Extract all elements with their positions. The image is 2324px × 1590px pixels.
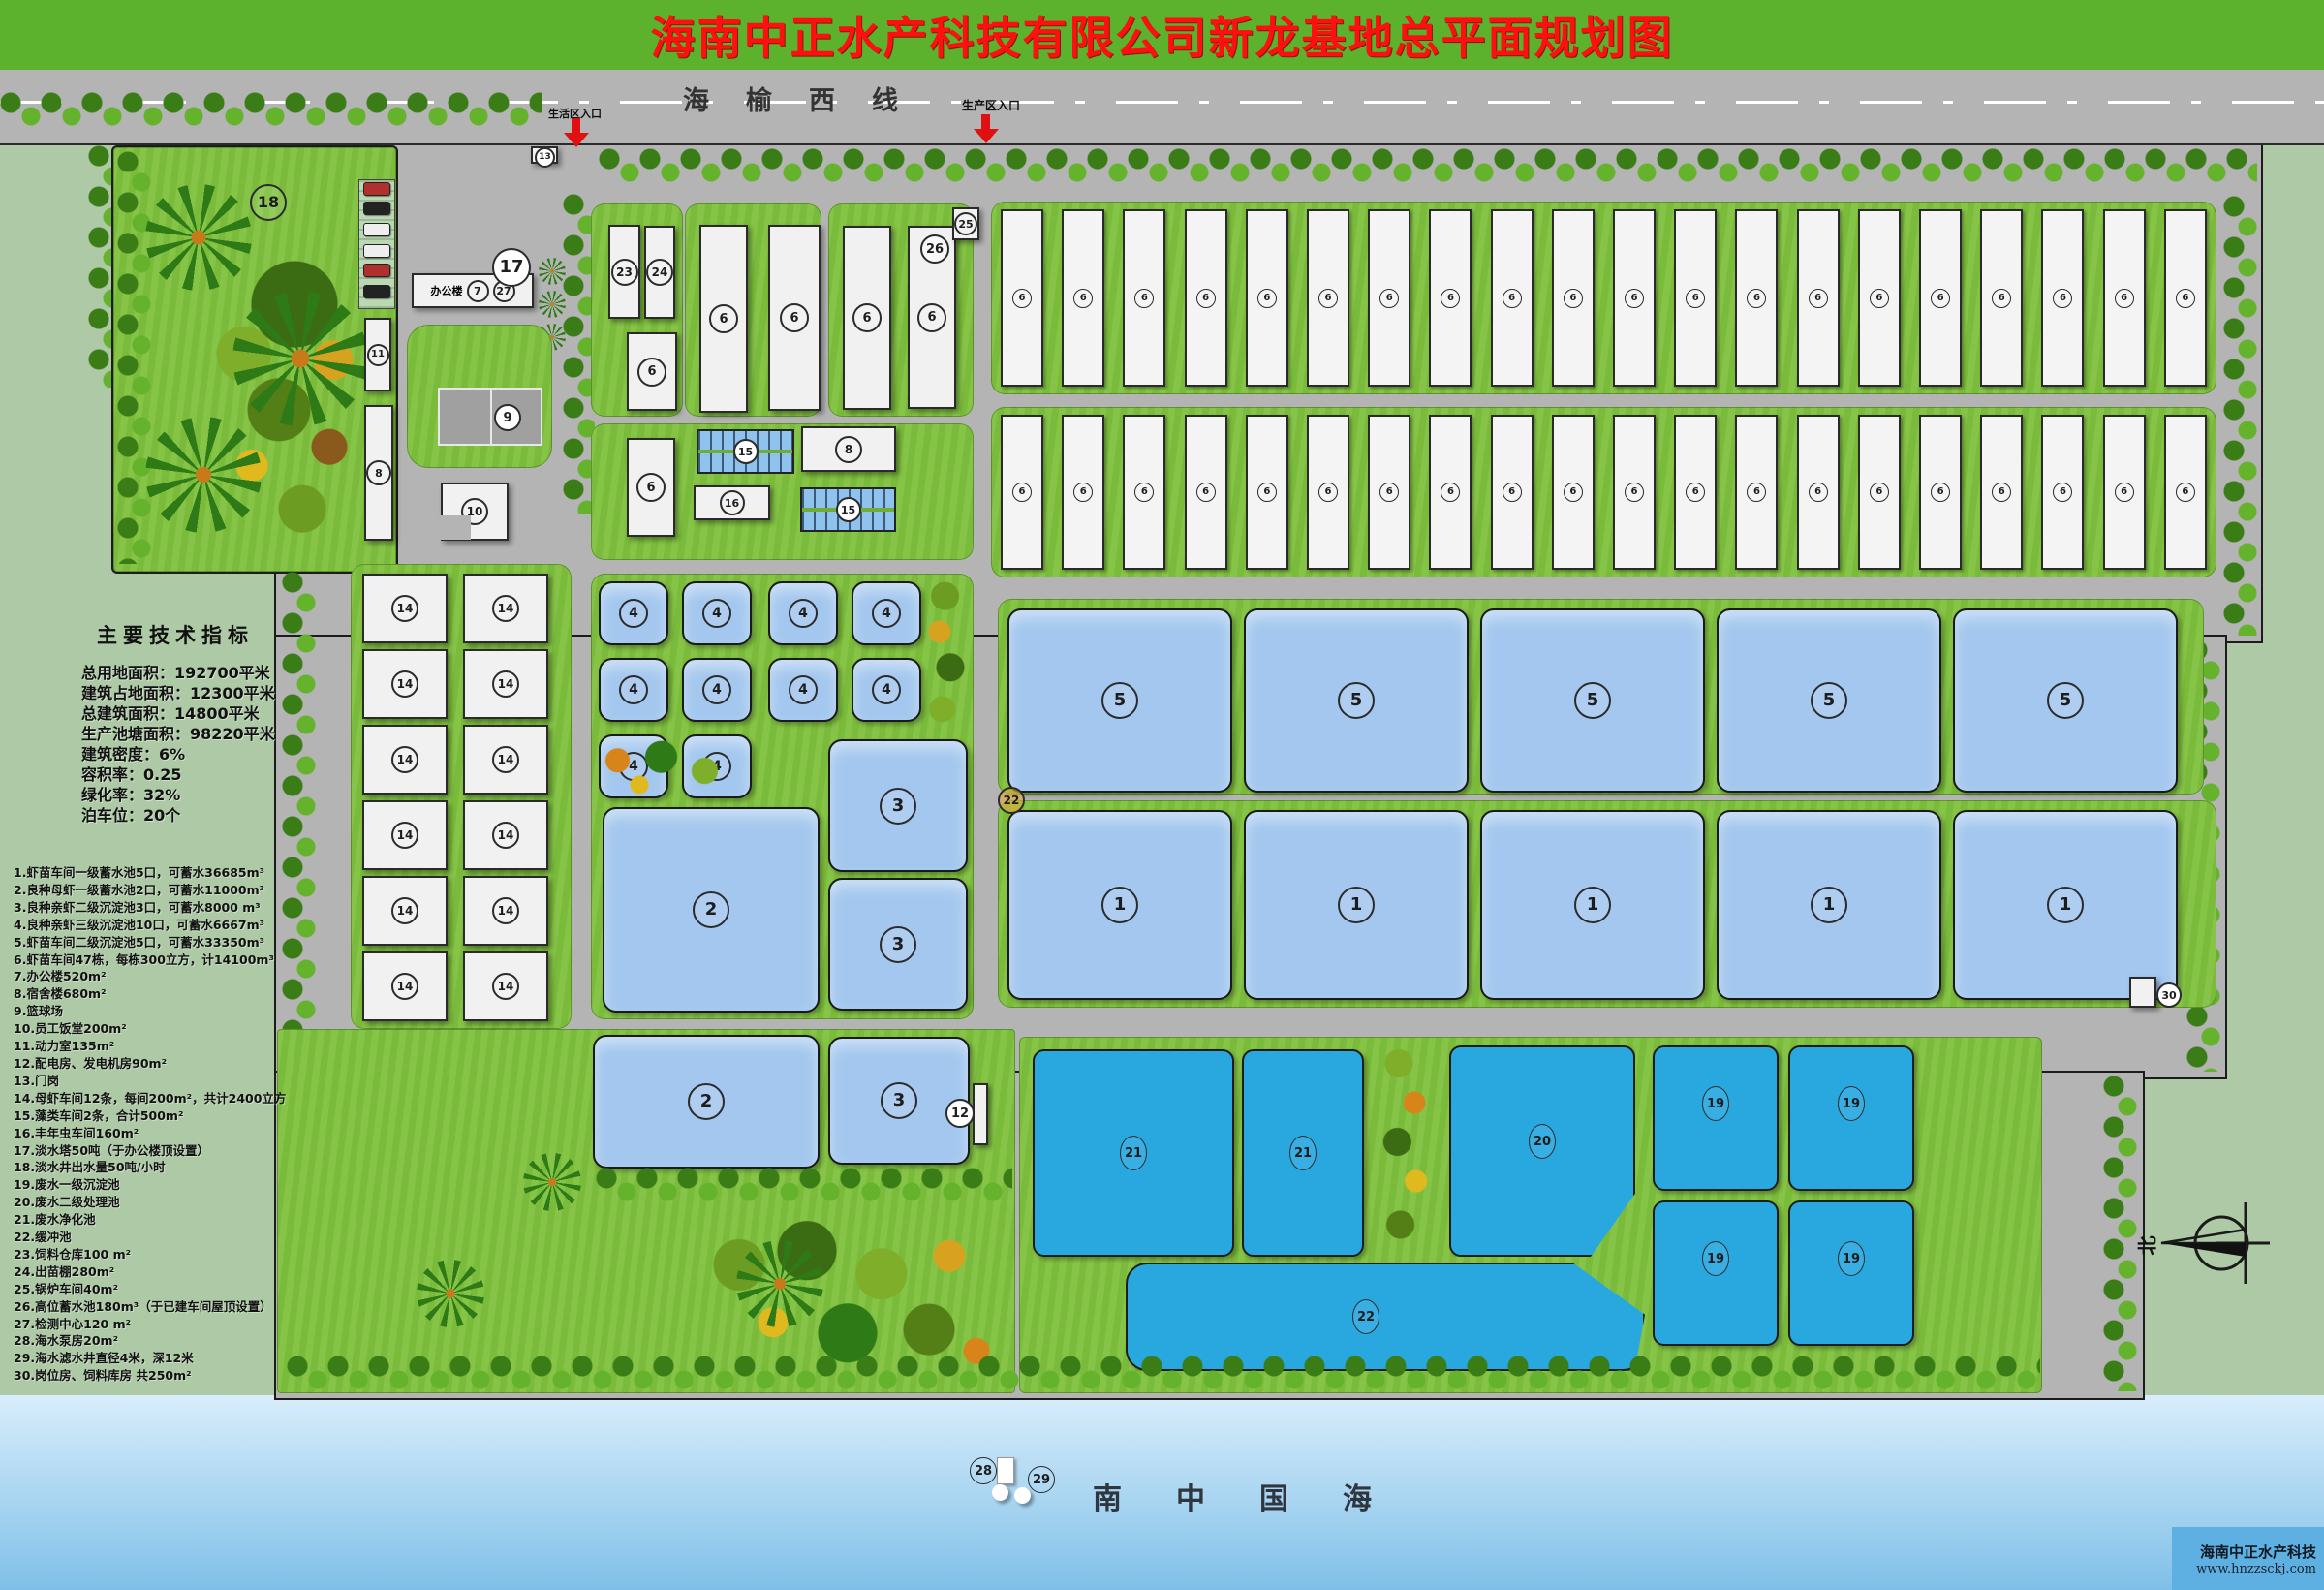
label-6-workshop: 6 bbox=[1625, 483, 1644, 502]
label-6-workshop: 6 bbox=[780, 303, 809, 332]
shrimp-workshop-building: 6 bbox=[1246, 209, 1288, 387]
label-14-mother-shrimp: 14 bbox=[492, 897, 519, 924]
shrimp-workshop-building: 6 bbox=[2041, 415, 2084, 570]
label-6-workshop: 6 bbox=[637, 358, 666, 387]
site-plan-canvas: 海南中正水产科技有限公司新龙基地总平面规划图 海榆西线 生活区入口 生产区入口 … bbox=[0, 0, 2324, 1590]
label-20: 20 bbox=[1529, 1124, 1556, 1159]
pond-21-purification: 21 bbox=[1242, 1049, 1364, 1257]
pond-1-primary-reservoir: 1 bbox=[1480, 810, 1705, 1000]
shrimp-workshop-building: 6 bbox=[1368, 209, 1410, 387]
label-25-boiler-room: 25 bbox=[954, 212, 977, 235]
car-icon bbox=[363, 202, 390, 215]
prod-entrance-arrow bbox=[981, 114, 990, 130]
shrimp-workshop-building: 6 bbox=[2164, 415, 2207, 570]
legend-item-line: 6.虾苗车间47栋，每栋300立方，计14100m³ bbox=[14, 951, 286, 969]
legend-item-line: 20.废水二级处理池 bbox=[14, 1194, 286, 1211]
label-6-workshop: 6 bbox=[1870, 483, 1889, 502]
label-4: 4 bbox=[702, 675, 731, 704]
tree-column bbox=[2220, 196, 2257, 636]
label-5: 5 bbox=[2047, 682, 2084, 719]
label-14-mother-shrimp: 14 bbox=[492, 822, 519, 849]
pond-1-primary-reservoir: 1 bbox=[1007, 810, 1232, 1000]
pond-4-tertiary-sedimentation: 4 bbox=[682, 581, 752, 645]
shrimp-workshop-building: 6 bbox=[627, 332, 677, 411]
pond-2-mother-shrimp-reservoir: 2 bbox=[593, 1035, 820, 1169]
label-9-basketball-court: 9 bbox=[494, 404, 521, 431]
label-1: 1 bbox=[1101, 887, 1138, 923]
label-6-workshop: 6 bbox=[1809, 483, 1828, 502]
label-6-workshop: 6 bbox=[636, 473, 666, 502]
pond-1-primary-reservoir: 1 bbox=[1717, 810, 1941, 1000]
pond-3-secondary-sedimentation: 3 bbox=[828, 1037, 970, 1165]
label-4: 4 bbox=[872, 675, 901, 704]
indicator-line: 总用地面积：192700平米 bbox=[81, 663, 275, 683]
label-1: 1 bbox=[1811, 887, 1847, 923]
tree-grove bbox=[1368, 1042, 1445, 1260]
label-19: 19 bbox=[1838, 1241, 1865, 1276]
tree-grove bbox=[918, 577, 972, 733]
label-11-power-room: 11 bbox=[367, 344, 389, 366]
label-21: 21 bbox=[1289, 1136, 1317, 1170]
label-6-workshop: 6 bbox=[1196, 289, 1216, 308]
shrimp-workshop-building: 6 bbox=[1858, 415, 1901, 570]
label-1: 1 bbox=[1574, 887, 1611, 923]
legend-item-line: 15.藻类车间2条，合计500m² bbox=[14, 1107, 286, 1125]
label-6-workshop: 6 bbox=[1503, 289, 1522, 308]
label-14-mother-shrimp: 14 bbox=[492, 670, 519, 698]
label-6-workshop: 6 bbox=[1012, 483, 1032, 502]
label-26-elevated-tank: 26 bbox=[920, 234, 949, 264]
label-16-brine-shrimp-workshop: 16 bbox=[720, 490, 745, 515]
sedimentation-ponds-grid: 4 4 4 4 bbox=[768, 581, 917, 718]
shrimp-workshop-building: 6 bbox=[1735, 209, 1778, 387]
tree-row bbox=[0, 89, 542, 136]
legend-item-line: 10.员工饭堂200m² bbox=[14, 1020, 286, 1038]
prod-entrance-arrowhead bbox=[974, 129, 999, 143]
label-14-mother-shrimp: 14 bbox=[492, 746, 519, 773]
pond-5-secondary-sedimentation: 5 bbox=[1480, 608, 1705, 793]
shrimp-workshop-building: 6 bbox=[1062, 209, 1104, 387]
label-6-workshop: 6 bbox=[1073, 289, 1093, 308]
label-6-workshop: 6 bbox=[1134, 483, 1154, 502]
sea-label: 南中国海 bbox=[1093, 1475, 1426, 1517]
label-30-post-house: 30 bbox=[2156, 982, 2182, 1008]
shrimp-workshop-building: 6 bbox=[1307, 415, 1349, 570]
indicator-line: 容积率：0.25 bbox=[81, 764, 275, 785]
label-6-workshop: 6 bbox=[1747, 483, 1766, 502]
mother-shrimp-workshop-building: 14 bbox=[362, 574, 448, 643]
legend-item-line: 12.配电房、发电机房90m² bbox=[14, 1055, 286, 1073]
label-6-workshop: 6 bbox=[1503, 483, 1522, 502]
shrimp-workshop-building: 6 bbox=[1001, 415, 1043, 570]
mother-shrimp-workshop-building: 14 bbox=[463, 800, 548, 870]
label-6-workshop: 6 bbox=[1747, 289, 1766, 308]
legend-item-line: 5.虾苗车间二级沉淀池5口，可蓄水33350m³ bbox=[14, 934, 286, 951]
shrimp-workshop-building: 6 bbox=[1674, 415, 1717, 570]
legend-item-line: 29.海水滤水井直径4米，深12米 bbox=[14, 1350, 286, 1367]
legend-item-line: 9.篮球场 bbox=[14, 1003, 286, 1020]
legend-items: 1.虾苗车间一级蓄水池5口，可蓄水36685m³2.良种母虾一级蓄水池2口，可蓄… bbox=[14, 864, 286, 1385]
indicator-line: 总建筑面积：14800平米 bbox=[81, 703, 275, 724]
shed-grid: 14 14 14 14 14 14 14 14 14 14 14 14 bbox=[362, 574, 544, 1017]
label-21: 21 bbox=[1120, 1136, 1147, 1170]
label-6-workshop: 6 bbox=[709, 304, 738, 333]
indicator-line: 建筑密度：6% bbox=[81, 744, 275, 764]
compass-north-label: 北 bbox=[2132, 1236, 2160, 1256]
indicator-line: 生产池塘面积：98220平米 bbox=[81, 724, 275, 744]
legend-item-line: 11.动力室135m² bbox=[14, 1038, 286, 1055]
primary-sedimentation-grid: 19 19 19 19 bbox=[1653, 1045, 1910, 1342]
label-3: 3 bbox=[880, 926, 916, 963]
pond-2-mother-shrimp-reservoir: 2 bbox=[603, 807, 820, 1013]
palm-tree-icon bbox=[539, 291, 566, 318]
pond-5-secondary-sedimentation: 5 bbox=[1007, 608, 1232, 793]
label-6-workshop: 6 bbox=[1379, 289, 1399, 308]
label-3: 3 bbox=[881, 1082, 917, 1119]
label-3: 3 bbox=[880, 788, 916, 825]
shrimp-workshop-building: 6 bbox=[2041, 209, 2084, 387]
legend-item-line: 22.缓冲池 bbox=[14, 1229, 286, 1246]
pond-4-tertiary-sedimentation: 4 bbox=[768, 658, 838, 722]
mother-shrimp-workshop-building: 14 bbox=[362, 876, 448, 946]
shrimp-workshop-building: 6 bbox=[1123, 415, 1165, 570]
algae-workshop-pond: 15 bbox=[800, 487, 896, 532]
label-6-workshop: 6 bbox=[1073, 483, 1093, 502]
pond-19-primary-sedimentation: 19 bbox=[1788, 1200, 1914, 1346]
dormitory-building: 8 bbox=[364, 405, 393, 541]
mother-shrimp-workshop-building: 14 bbox=[463, 649, 548, 719]
legend-item-line: 25.锅炉车间40m² bbox=[14, 1281, 286, 1298]
shrimp-workshop-building: 6 bbox=[1429, 209, 1472, 387]
title-banner: 海南中正水产科技有限公司新龙基地总平面规划图 bbox=[0, 0, 2324, 70]
label-22: 22 bbox=[1352, 1299, 1379, 1334]
pond-20-secondary-treatment: 20 bbox=[1449, 1045, 1635, 1257]
legend-item-line: 13.门岗 bbox=[14, 1073, 286, 1090]
legend-item-line: 24.出苗棚280m² bbox=[14, 1263, 286, 1281]
label-6-workshop: 6 bbox=[852, 303, 882, 332]
label-6-workshop: 6 bbox=[1564, 483, 1583, 502]
legend-item-line: 2.良种母虾一级蓄水池2口，可蓄水11000m³ bbox=[14, 882, 286, 899]
label-8-dormitory: 8 bbox=[835, 436, 862, 463]
label-2: 2 bbox=[688, 1083, 725, 1120]
sea-pump-house bbox=[997, 1457, 1014, 1484]
shrimp-workshop-building: 6 bbox=[1735, 415, 1778, 570]
shrimp-workshop-building: 6 bbox=[1368, 415, 1410, 570]
mother-shrimp-workshop-building: 14 bbox=[463, 725, 548, 795]
pond-5-secondary-sedimentation: 5 bbox=[1953, 608, 2178, 793]
legend-item-line: 4.良种亲虾三级沉淀池10口，可蓄水6667m³ bbox=[14, 917, 286, 934]
tree-column bbox=[2100, 1076, 2137, 1391]
legend-item-line: 30.岗位房、饲料库房 共250m² bbox=[14, 1367, 286, 1385]
legend-item-line: 26.高位蓄水池180m³（于已建车间屋顶设置） bbox=[14, 1298, 286, 1316]
label-6-workshop: 6 bbox=[1992, 289, 2011, 308]
pond-19-primary-sedimentation: 19 bbox=[1653, 1200, 1779, 1346]
label-6-workshop: 6 bbox=[1564, 289, 1583, 308]
label-13-gatehouse: 13 bbox=[535, 147, 555, 168]
label-5: 5 bbox=[1101, 682, 1138, 719]
label-4: 4 bbox=[789, 599, 818, 628]
label-8-dormitory: 8 bbox=[366, 460, 391, 485]
pond-4-tertiary-sedimentation: 4 bbox=[682, 658, 752, 722]
shrimp-workshop-building: 6 bbox=[1797, 415, 1840, 570]
shrimp-workshop-building: 6 bbox=[1919, 209, 1962, 387]
highway-name: 海榆西线 bbox=[683, 79, 935, 117]
pond-3-secondary-sedimentation: 3 bbox=[828, 739, 968, 872]
shrimp-workshop-building: 6 bbox=[1613, 209, 1656, 387]
label-6-workshop: 6 bbox=[2176, 289, 2195, 308]
label-6-workshop: 6 bbox=[1686, 483, 1705, 502]
label-7-office: 7 bbox=[467, 280, 489, 302]
tree-column bbox=[560, 194, 595, 514]
label-6-workshop: 6 bbox=[1318, 289, 1338, 308]
label-14-mother-shrimp: 14 bbox=[492, 973, 519, 1000]
pond-4-tertiary-sedimentation: 4 bbox=[768, 581, 838, 645]
shrimp-workshop-building: 6 bbox=[1552, 415, 1595, 570]
palm-tree-icon bbox=[523, 1153, 581, 1211]
label-14-mother-shrimp: 14 bbox=[492, 595, 519, 622]
workshop-row-parcel: 6 6 6 6 6 6 6 6 6 6 6 6 6 6 6 6 bbox=[991, 407, 2216, 577]
brine-shrimp-workshop-building: 16 bbox=[694, 485, 770, 520]
label-1: 1 bbox=[2047, 887, 2084, 923]
reservoir-ponds-row: 1 1 1 1 1 bbox=[1007, 810, 2178, 1000]
shrimp-workshop-building: 6 bbox=[1491, 209, 1534, 387]
reservoir-ponds-row: 5 5 5 5 5 bbox=[1007, 608, 2178, 793]
label-6-workshop: 6 bbox=[1196, 483, 1216, 502]
label-6-workshop: 6 bbox=[1931, 289, 1950, 308]
office-label: 办公楼 bbox=[431, 283, 463, 298]
shrimp-workshop-building: 6 bbox=[1980, 415, 2023, 570]
pond-19-primary-sedimentation: 19 bbox=[1788, 1045, 1914, 1191]
label-14-mother-shrimp: 14 bbox=[391, 822, 418, 849]
label-6-workshop: 6 bbox=[1318, 483, 1338, 502]
label-14-mother-shrimp: 14 bbox=[391, 897, 418, 924]
label-6-workshop: 6 bbox=[2176, 483, 2195, 502]
workshop-row-parcel: 6 6 6 6 6 6 6 6 6 6 6 6 6 6 6 6 bbox=[991, 202, 2216, 394]
shrimp-workshop-building: 6 bbox=[2103, 209, 2146, 387]
pond-19-primary-sedimentation: 19 bbox=[1653, 1045, 1779, 1191]
shrimp-workshop-building: 6 bbox=[2103, 415, 2146, 570]
legend-item-line: 16.丰年虫车间160m² bbox=[14, 1125, 286, 1142]
prod-entrance-label: 生产区入口 bbox=[962, 97, 1020, 113]
label-5: 5 bbox=[1338, 682, 1375, 719]
label-14-mother-shrimp: 14 bbox=[391, 595, 418, 622]
label-19: 19 bbox=[1702, 1241, 1729, 1276]
label-6-workshop: 6 bbox=[1441, 289, 1460, 308]
pond-4-tertiary-sedimentation: 4 bbox=[852, 658, 921, 722]
filter-well-icon bbox=[992, 1484, 1008, 1501]
feed-warehouse-building: 23 bbox=[608, 225, 640, 319]
palm-tree-icon bbox=[145, 417, 262, 533]
label-1: 1 bbox=[1338, 887, 1375, 923]
shrimp-workshop-building: 6 bbox=[1123, 209, 1165, 387]
canteen-notch bbox=[438, 515, 471, 540]
shrimp-workshop-building: 6 bbox=[1246, 415, 1288, 570]
label-6-workshop: 6 bbox=[1992, 483, 2011, 502]
indicator-line: 建筑占地面积：12300平米 bbox=[81, 683, 275, 703]
label-5: 5 bbox=[1574, 682, 1611, 719]
legend-item-line: 21.废水净化池 bbox=[14, 1211, 286, 1229]
shrimp-workshop-building: 6 bbox=[843, 226, 891, 410]
label-15-algae-workshop: 15 bbox=[836, 497, 861, 522]
label-4: 4 bbox=[789, 675, 818, 704]
life-entrance-arrow bbox=[572, 118, 580, 134]
label-15-algae-workshop: 15 bbox=[733, 439, 759, 464]
label-6-workshop: 6 bbox=[1257, 483, 1277, 502]
shrimp-workshop-building: 6 bbox=[1185, 209, 1227, 387]
label-6-workshop: 6 bbox=[1931, 483, 1950, 502]
pond-5-secondary-sedimentation: 5 bbox=[1717, 608, 1941, 793]
pond-4-tertiary-sedimentation: 4 bbox=[599, 658, 668, 722]
label-6-workshop: 6 bbox=[2053, 483, 2072, 502]
shrimp-workshop-building: 6 bbox=[1062, 415, 1104, 570]
legend-item-line: 3.良种亲虾二级沉淀池3口，可蓄水8000 m³ bbox=[14, 899, 286, 917]
shrimp-workshop-building: 6 bbox=[1001, 209, 1043, 387]
label-19: 19 bbox=[1838, 1086, 1865, 1121]
dormitory-building: 8 bbox=[801, 426, 896, 472]
label-22-buffer: 22 bbox=[998, 787, 1025, 814]
filter-well-icon bbox=[1014, 1487, 1031, 1504]
plan-title: 海南中正水产科技有限公司新龙基地总平面规划图 bbox=[651, 3, 1674, 67]
company-logo: 海南中正水产科技 www.hnzzsckj.com bbox=[2172, 1527, 2324, 1590]
label-14-mother-shrimp: 14 bbox=[391, 746, 418, 773]
shrimp-workshop-building: 6 bbox=[1185, 415, 1227, 570]
tree-grove bbox=[596, 733, 741, 802]
label-14-mother-shrimp: 14 bbox=[391, 670, 418, 698]
pond-1-primary-reservoir: 1 bbox=[1953, 810, 2178, 1000]
shrimp-workshop-building: 6 bbox=[2164, 209, 2207, 387]
label-4: 4 bbox=[872, 599, 901, 628]
shrimp-workshop-building: 6 bbox=[1797, 209, 1840, 387]
legend-item-line: 17.淡水塔50吨（于办公楼顶设置） bbox=[14, 1142, 286, 1160]
label-19: 19 bbox=[1702, 1086, 1729, 1121]
substation-building bbox=[973, 1083, 988, 1145]
palm-tree-icon bbox=[417, 1260, 484, 1327]
mother-shrimp-workshop-building: 14 bbox=[463, 951, 548, 1021]
company-url: www.hnzzsckj.com bbox=[2196, 1562, 2316, 1576]
pond-4-tertiary-sedimentation: 4 bbox=[852, 581, 921, 645]
car-icon bbox=[363, 223, 390, 236]
mother-shrimp-workshop-building: 14 bbox=[362, 800, 448, 870]
shrimp-workshop-building: 6 bbox=[1674, 209, 1717, 387]
palm-tree-icon bbox=[539, 258, 566, 285]
shrimp-workshop-building: 6 bbox=[1613, 415, 1656, 570]
pond-4-tertiary-sedimentation: 4 bbox=[599, 581, 668, 645]
label-18-freshwater-well: 18 bbox=[250, 184, 287, 221]
legend-item-line: 18.淡水井出水量50吨/小时 bbox=[14, 1159, 286, 1176]
label-6-workshop: 6 bbox=[1134, 289, 1154, 308]
shrimp-workshop-building: 6 bbox=[1919, 415, 1962, 570]
label-6-workshop: 6 bbox=[917, 303, 946, 332]
label-6-workshop: 6 bbox=[1809, 289, 1828, 308]
tree-column bbox=[114, 151, 155, 564]
label-5: 5 bbox=[1811, 682, 1847, 719]
car-icon bbox=[363, 182, 390, 196]
mother-shrimp-workshop-building: 14 bbox=[463, 574, 548, 643]
basketball-court: 9 bbox=[438, 388, 542, 446]
legend-item-line: 8.宿舍楼680m² bbox=[14, 985, 286, 1003]
legend-title: 主要技术指标 bbox=[97, 620, 254, 649]
shrimp-workshop-building: 6 bbox=[699, 225, 748, 413]
label-6-workshop: 6 bbox=[2115, 289, 2134, 308]
compass: 北 bbox=[2136, 1197, 2272, 1290]
pond-1-primary-reservoir: 1 bbox=[1244, 810, 1469, 1000]
label-24-seedling-shed: 24 bbox=[646, 259, 673, 286]
company-name: 海南中正水产科技 bbox=[2200, 1542, 2316, 1562]
label-12-substation: 12 bbox=[945, 1099, 975, 1128]
car-icon bbox=[363, 285, 390, 298]
legend-item-line: 14.母虾车间12条，每间200m²，共计2400立方 bbox=[14, 1090, 286, 1107]
shrimp-workshop-building: 6 bbox=[1307, 209, 1349, 387]
shrimp-workshop-building: 6 bbox=[1491, 415, 1534, 570]
label-29-filter-well: 29 bbox=[1028, 1466, 1055, 1493]
label-17-water-tower: 17 bbox=[492, 248, 531, 287]
palm-tree-icon bbox=[736, 1240, 823, 1327]
label-6-workshop: 6 bbox=[2115, 483, 2134, 502]
label-6-workshop: 6 bbox=[1257, 289, 1277, 308]
label-6-workshop: 6 bbox=[1870, 289, 1889, 308]
label-6-workshop: 6 bbox=[1686, 289, 1705, 308]
mother-shrimp-workshop-building: 14 bbox=[362, 649, 448, 719]
tree-row bbox=[287, 1353, 2040, 1393]
shrimp-workshop-building: 6 bbox=[1980, 209, 2023, 387]
label-6-workshop: 6 bbox=[1441, 483, 1460, 502]
label-6-workshop: 6 bbox=[1625, 289, 1644, 308]
shrimp-workshop-building: 6 bbox=[1552, 209, 1595, 387]
label-4: 4 bbox=[619, 599, 648, 628]
label-6-workshop: 6 bbox=[1379, 483, 1399, 502]
pond-3-secondary-sedimentation: 3 bbox=[828, 878, 968, 1011]
car-icon bbox=[363, 244, 390, 258]
label-6-workshop: 6 bbox=[1012, 289, 1032, 308]
legend-item-line: 28.海水泵房20m² bbox=[14, 1332, 286, 1350]
label-6-workshop: 6 bbox=[2053, 289, 2072, 308]
life-entrance-arrowhead bbox=[564, 133, 589, 147]
tree-row bbox=[596, 1165, 1012, 1209]
label-28-sea-pump: 28 bbox=[970, 1457, 997, 1484]
algae-workshop-pond: 15 bbox=[697, 429, 794, 474]
indicator-line: 泊车位：20个 bbox=[81, 805, 275, 826]
boiler-room-building: 25 bbox=[952, 207, 979, 240]
shrimp-workshop-building: 6 bbox=[1429, 415, 1472, 570]
indicator-line: 绿化率：32% bbox=[81, 785, 275, 805]
car-icon bbox=[363, 264, 390, 277]
label-4: 4 bbox=[702, 599, 731, 628]
post-house-building bbox=[2129, 977, 2156, 1008]
label-4: 4 bbox=[619, 675, 648, 704]
shrimp-workshop-building: 6 bbox=[627, 438, 675, 537]
power-room-building: 11 bbox=[364, 318, 391, 391]
tree-row bbox=[599, 145, 2257, 192]
label-14-mother-shrimp: 14 bbox=[391, 973, 418, 1000]
legend-item-line: 1.虾苗车间一级蓄水池5口，可蓄水36685m³ bbox=[14, 864, 286, 882]
mother-shrimp-workshop-building: 14 bbox=[463, 876, 548, 946]
legend-item-line: 23.饲料仓库100 m² bbox=[14, 1246, 286, 1263]
shrimp-workshop-building: 6 bbox=[768, 225, 821, 411]
label-23-feed-warehouse: 23 bbox=[611, 259, 638, 286]
mother-shrimp-workshop-building: 14 bbox=[362, 725, 448, 795]
legend-indicators: 总用地面积：192700平米建筑占地面积：12300平米总建筑面积：14800平… bbox=[81, 663, 275, 826]
mother-shrimp-workshop-building: 14 bbox=[362, 951, 448, 1021]
seedling-shed-building: 24 bbox=[644, 226, 675, 319]
palm-tree-icon bbox=[232, 291, 368, 426]
legend-item-line: 27.检测中心120 m² bbox=[14, 1316, 286, 1333]
label-2: 2 bbox=[693, 891, 729, 928]
palm-tree-icon bbox=[145, 184, 252, 291]
pond-21-purification: 21 bbox=[1033, 1049, 1234, 1257]
legend-item-line: 7.办公楼520m² bbox=[14, 968, 286, 985]
legend-item-line: 19.废水一级沉淀池 bbox=[14, 1176, 286, 1194]
shrimp-workshop-building: 6 bbox=[1858, 209, 1901, 387]
